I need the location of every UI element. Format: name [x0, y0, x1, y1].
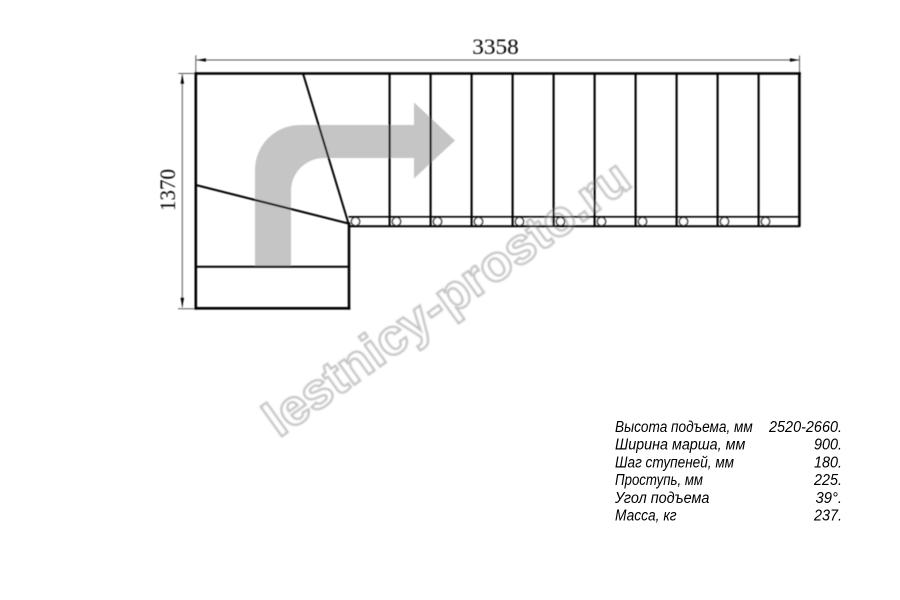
svg-text:900.: 900.: [814, 437, 842, 454]
svg-text:1370: 1370: [155, 169, 180, 211]
svg-text:Шаг ступеней, мм: Шаг ступеней, мм: [615, 454, 734, 471]
svg-text:39°.: 39°.: [816, 490, 843, 507]
svg-text:225.: 225.: [813, 472, 842, 489]
svg-text:Проступь, мм: Проступь, мм: [615, 472, 703, 489]
svg-text:3358: 3358: [472, 34, 519, 59]
svg-text:Угол подъема: Угол подъема: [614, 490, 710, 507]
svg-text:Высота подъема, мм: Высота подъема, мм: [615, 419, 753, 436]
svg-text:2520-2660.: 2520-2660.: [768, 419, 842, 436]
svg-text:Масса, кг: Масса, кг: [615, 508, 677, 525]
svg-text:Ширина марша, мм: Ширина марша, мм: [615, 437, 746, 454]
svg-text:180.: 180.: [814, 454, 842, 471]
svg-text:237.: 237.: [813, 508, 842, 525]
